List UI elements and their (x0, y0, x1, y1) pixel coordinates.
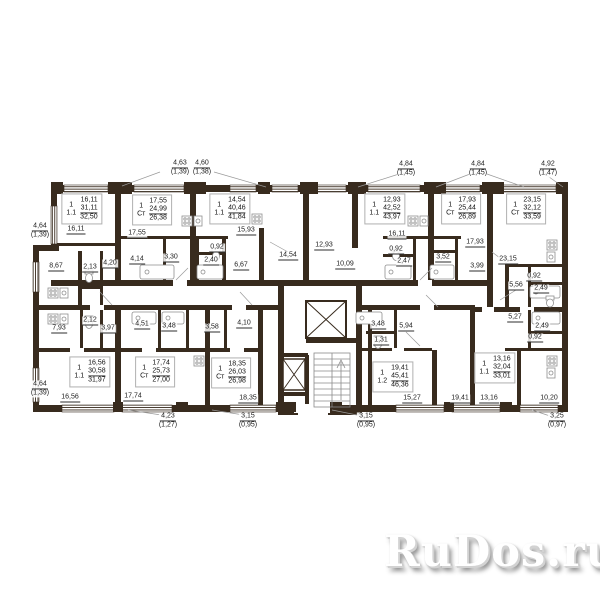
room-area-label: 0,92 (526, 273, 542, 282)
room-area-label: 0,92 (209, 244, 225, 253)
room-area-label: 14,54 (278, 252, 298, 261)
room-area-label: 2,49 (533, 285, 549, 294)
room-area-label: 2,12 (82, 317, 98, 326)
apartment-info-box: 11.116,5630,5831,97 (69, 356, 110, 387)
apartment-info-box: 1Ст18,3526,0326,98 (211, 357, 251, 388)
room-area-label: 17,55 (127, 230, 147, 239)
room-area-label: 1,31 (373, 337, 389, 346)
room-area-label: 19,41 (450, 395, 470, 404)
floorplan-page: 16,1117,5515,9314,5412,9310,0916,1117,93… (0, 0, 600, 600)
room-area-label: 3,48 (161, 323, 177, 332)
dimension-label: 3,25(0,97) (548, 412, 566, 429)
watermark: RuDos.ru (384, 527, 594, 577)
room-area-label: 5,27 (507, 314, 523, 323)
dimension-label: 4,64(1,39) (31, 380, 49, 397)
room-area-label: 12,93 (314, 242, 334, 251)
apartment-info-box: 11.112,9342,5243,97 (364, 193, 405, 224)
apartment-info-box: 11.116,1131,1132,50 (61, 193, 102, 224)
room-area-label: 15,27 (402, 395, 422, 404)
apartment-info-box: 11.219,4145,4146,36 (372, 361, 413, 392)
room-area-label: 17,93 (465, 239, 485, 248)
dimension-label: 4,84(1,45) (397, 160, 415, 177)
room-area-label: 8,67 (48, 263, 64, 272)
room-area-label: 2,49 (534, 323, 550, 332)
apartment-info-box: 1Ст17,7425,7327,00 (135, 356, 175, 387)
room-area-label: 4,20 (102, 260, 118, 269)
apartment-info-box: 11.114,5440,4641,84 (209, 193, 250, 224)
dimension-label: 4,63(1,39) (171, 159, 189, 176)
room-area-label: 4,14 (129, 256, 145, 265)
labels-layer: 16,1117,5515,9314,5412,9310,0916,1117,93… (0, 0, 600, 600)
room-area-label: 18,35 (238, 395, 258, 404)
apartment-info-box: 1Ст23,1532,1233,59 (506, 193, 546, 224)
room-area-label: 7,93 (51, 325, 67, 334)
room-area-label: 3,97 (100, 325, 116, 334)
dimension-label: 4,84(1,45) (469, 160, 487, 177)
apartment-info-box: 1Ст17,5524,9926,38 (132, 194, 172, 225)
room-area-label: 23,15 (498, 256, 518, 265)
room-area-label: 0,92 (527, 334, 543, 343)
room-area-label: 3,30 (163, 254, 179, 263)
dimension-label: 4,92(1,47) (539, 160, 557, 177)
room-area-label: 10,09 (335, 261, 355, 270)
room-area-label: 5,56 (508, 282, 524, 291)
dimension-label: 4,60(1,38) (193, 159, 211, 176)
dimension-label: 3,15(0,95) (239, 412, 257, 429)
room-area-label: 13,16 (479, 395, 499, 404)
room-area-label: 5,94 (398, 323, 414, 332)
room-area-label: 3,58 (204, 324, 220, 333)
dimension-label: 4,23(1,27) (159, 412, 177, 429)
room-area-label: 16,11 (67, 226, 86, 235)
room-area-label: 4,10 (236, 320, 252, 329)
room-area-label: 17,74 (123, 393, 143, 402)
room-area-label: 2,13 (82, 264, 98, 273)
room-area-label: 4,51 (134, 321, 150, 330)
room-area-label: 2,40 (203, 257, 219, 266)
apartment-info-box: 1Ст17,9325,4426,89 (441, 193, 481, 224)
room-area-label: 3,99 (469, 263, 485, 272)
room-area-label: 2,47 (396, 258, 412, 267)
room-area-label: 15,93 (236, 227, 256, 236)
dimension-label: 4,64(1,39) (31, 222, 49, 239)
room-area-label: 3,48 (370, 321, 386, 330)
room-area-label: 16,56 (60, 394, 80, 403)
dimension-label: 3,15(0,95) (357, 412, 375, 429)
room-area-label: 10,20 (539, 395, 559, 404)
room-area-label: 6,67 (233, 262, 249, 271)
room-area-label: 16,11 (388, 231, 407, 240)
room-area-label: 3,52 (435, 254, 451, 263)
apartment-info-box: 11.113,1632,0433,01 (474, 352, 515, 383)
room-area-label: 0,92 (388, 246, 404, 255)
